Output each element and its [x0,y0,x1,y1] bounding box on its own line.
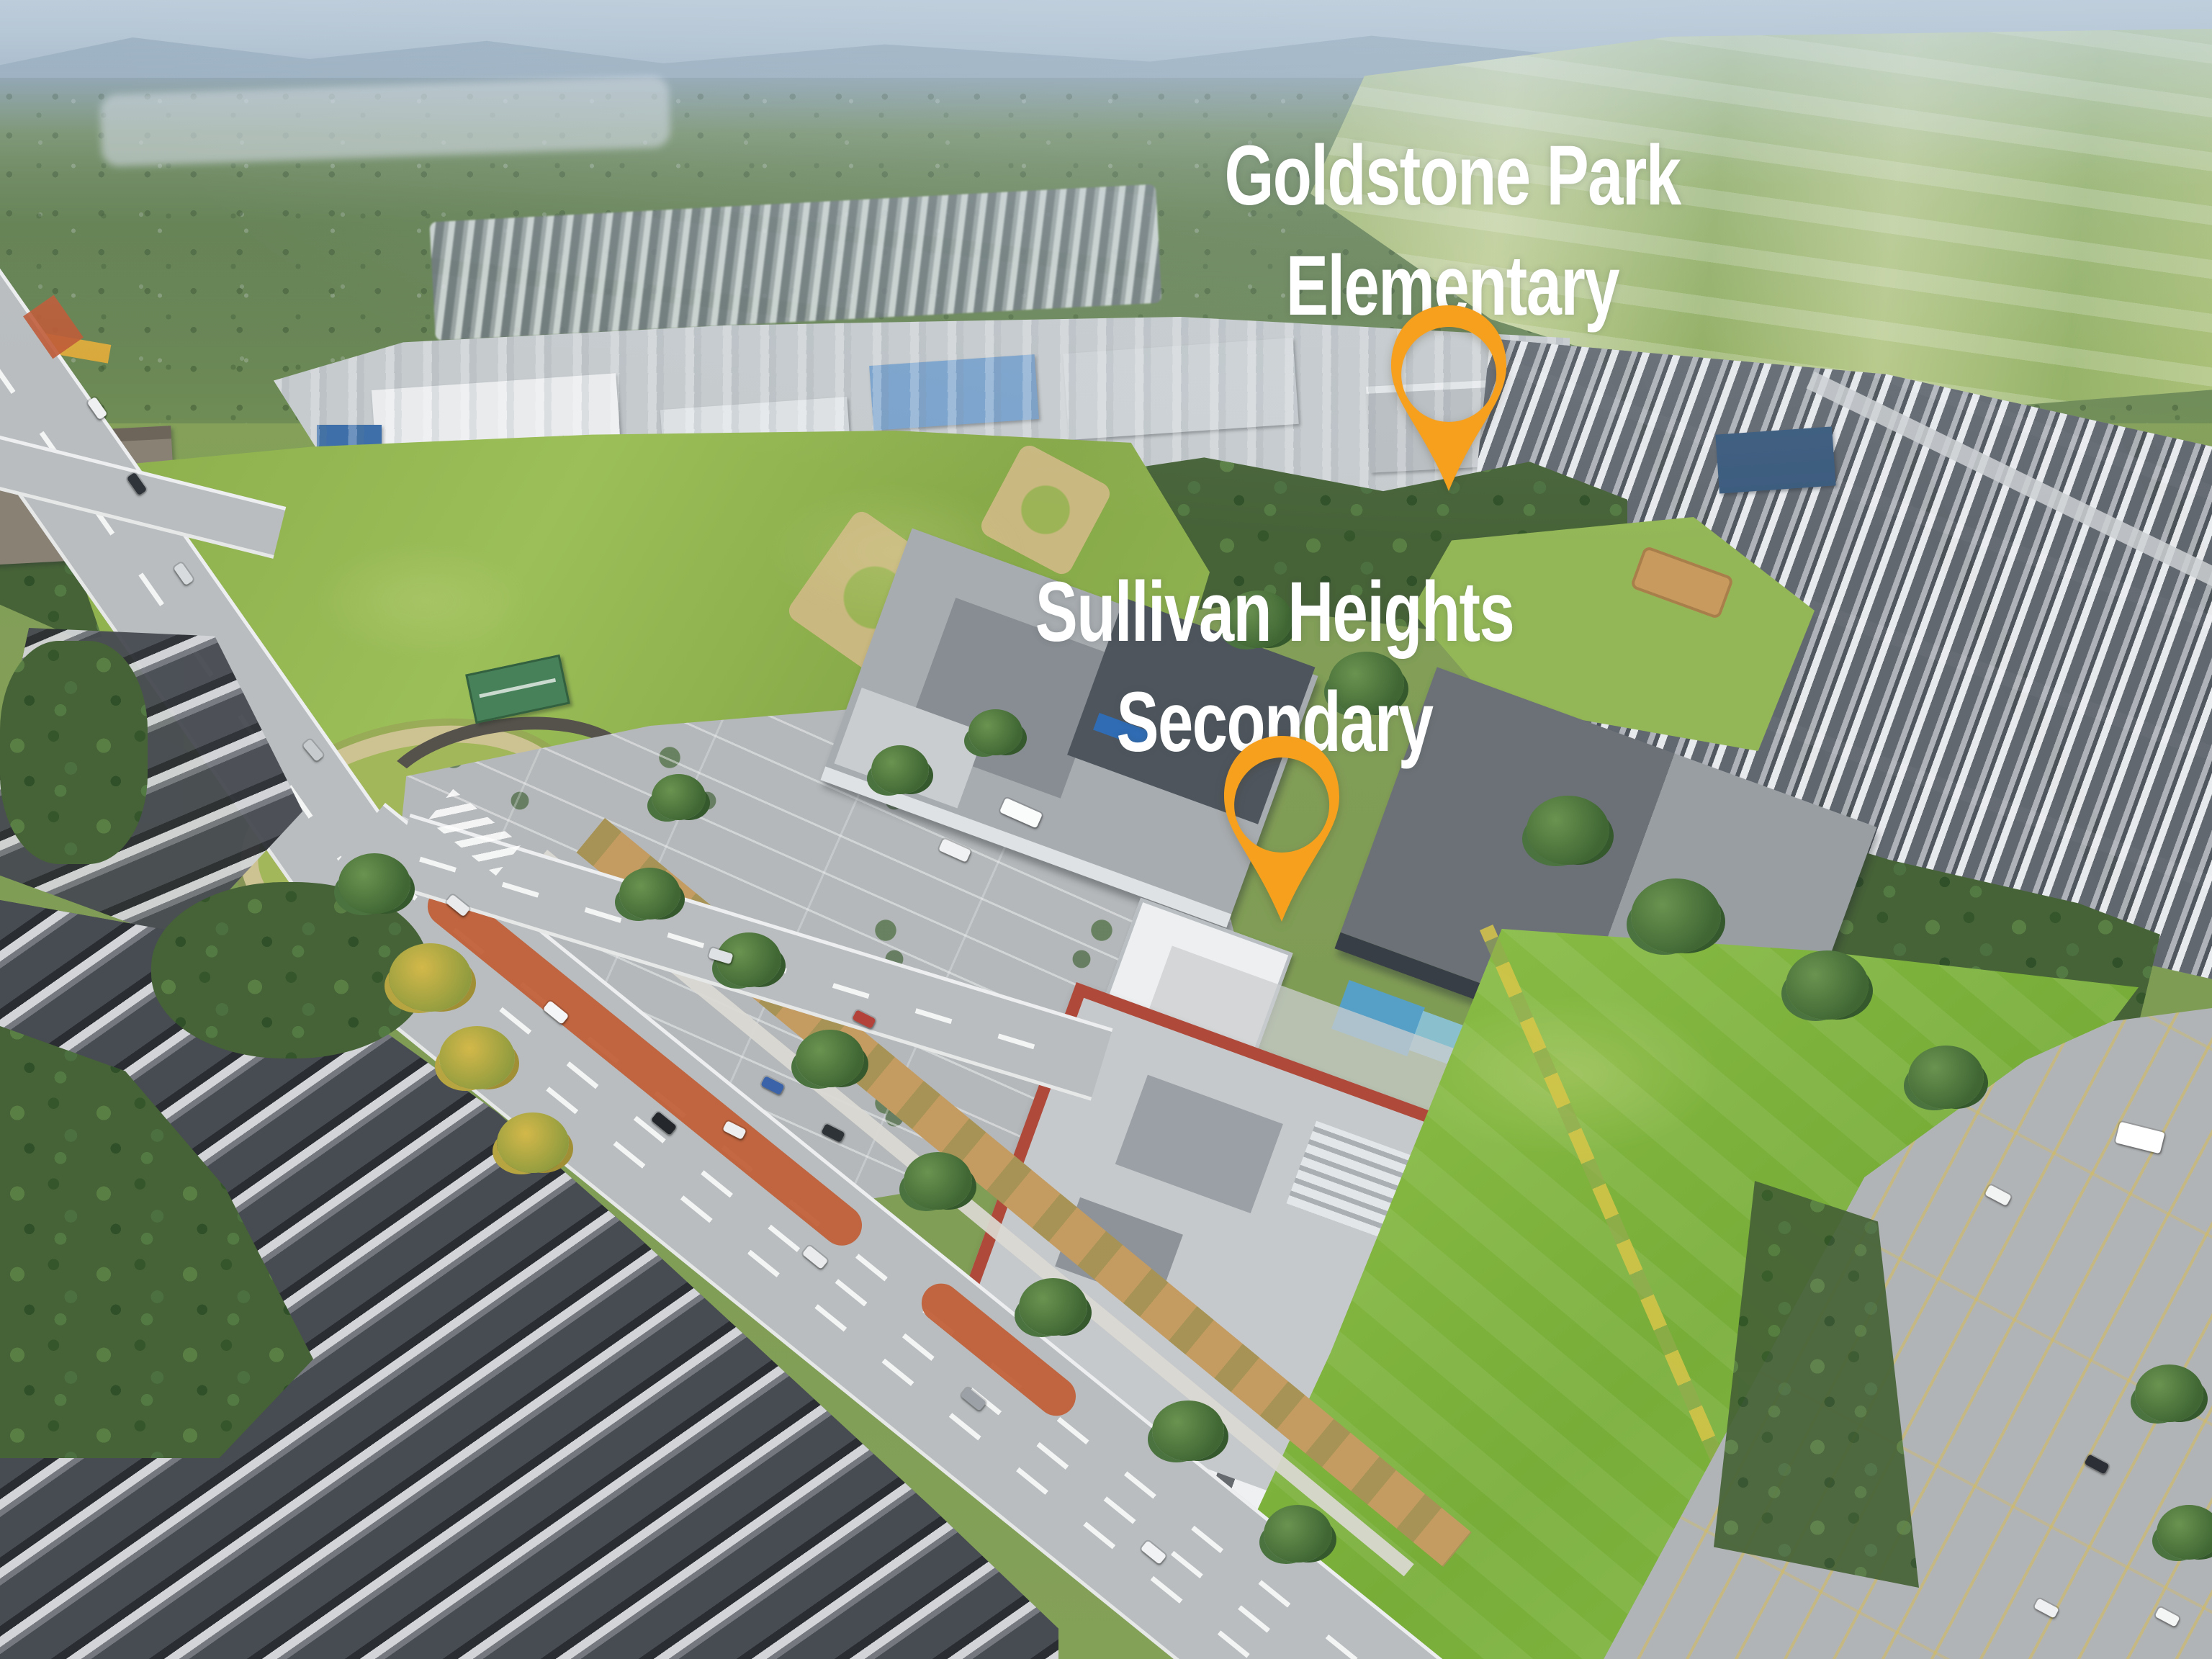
tree [389,943,472,1012]
office-building [1715,426,1835,493]
tree [439,1026,515,1089]
sullivan-label-line1: Sullivan Heights [1004,557,1545,667]
tree [1908,1046,1984,1109]
tree [652,774,706,820]
tree [1786,950,1869,1020]
tree [2135,1364,2203,1422]
tree [1019,1278,1087,1336]
tree [904,1152,972,1210]
warehouse-building [1063,338,1299,440]
tree [1527,796,1609,865]
aerial-photo: Goldstone Park Elementary Sullivan Heigh… [0,0,2212,1659]
tree [619,868,680,920]
tree [497,1112,569,1173]
tree [871,745,929,794]
blue-roof-building [869,354,1039,431]
tree [338,853,410,914]
conifer-grove [0,641,148,864]
rooftop-unit [1115,1075,1283,1213]
goldstone-map-pin-icon [1382,302,1515,494]
goldstone-label-line1: Goldstone Park [1182,121,1722,231]
tree [1631,878,1721,953]
tree [1152,1401,1224,1461]
tree [1264,1505,1332,1563]
sullivan-map-pin-icon [1215,733,1348,925]
tree [796,1030,864,1087]
